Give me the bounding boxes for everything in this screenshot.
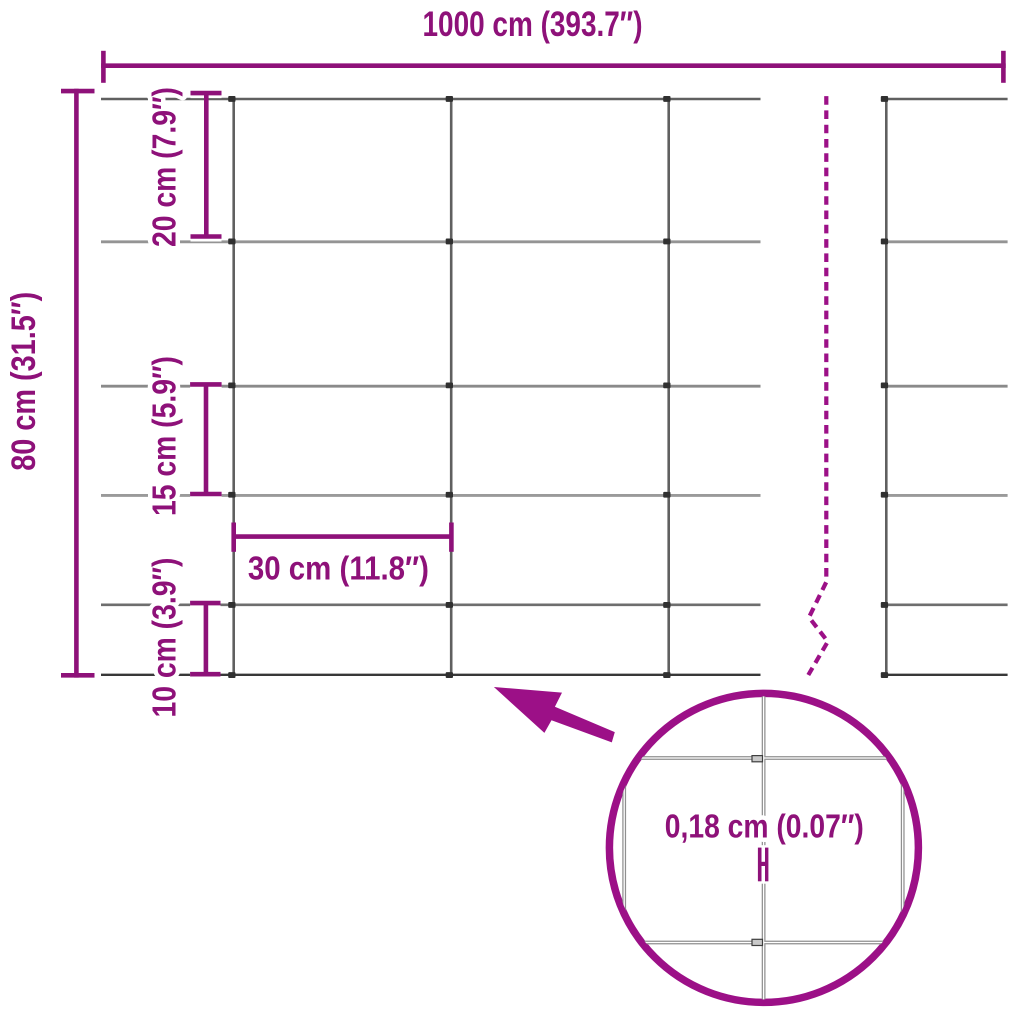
svg-text:10 cm (3.9″): 10 cm (3.9″) [146, 558, 183, 718]
svg-text:30 cm (11.8″): 30 cm (11.8″) [248, 550, 429, 587]
svg-text:1000 cm (393.7″): 1000 cm (393.7″) [423, 5, 643, 44]
svg-text:0,18 cm (0.07″): 0,18 cm (0.07″) [665, 807, 864, 844]
svg-text:20 cm (7.9″): 20 cm (7.9″) [146, 87, 183, 247]
svg-text:15 cm (5.9″): 15 cm (5.9″) [146, 356, 183, 516]
svg-text:80 cm (31.5″): 80 cm (31.5″) [5, 292, 43, 471]
